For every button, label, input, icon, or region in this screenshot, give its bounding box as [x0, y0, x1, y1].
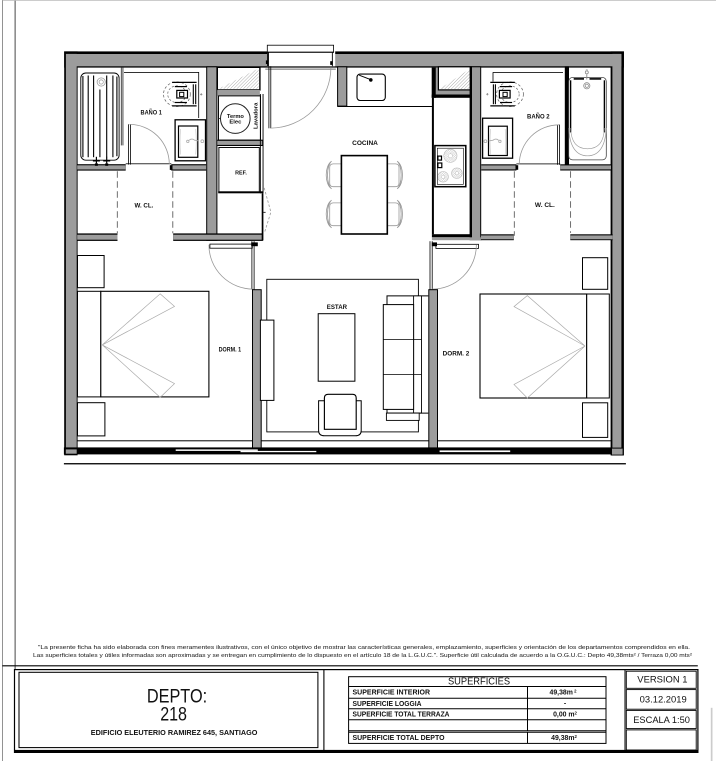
- svg-text:49,38m2: 49,38m2: [551, 734, 577, 742]
- svg-text:Elec: Elec: [229, 119, 241, 125]
- svg-text:DORM. 1: DORM. 1: [219, 347, 242, 354]
- svg-text:SUPERFICIE LOGGIA: SUPERFICIE LOGGIA: [353, 701, 422, 708]
- svg-text:SUPERFICIE INTERIOR: SUPERFICIE INTERIOR: [353, 690, 431, 697]
- svg-text:VERSION 1: VERSION 1: [637, 675, 687, 685]
- svg-text:0,00 m2: 0,00 m2: [553, 710, 577, 718]
- svg-text:ESTAR: ESTAR: [327, 304, 348, 311]
- svg-text:REF.: REF.: [235, 170, 247, 176]
- svg-text:BAÑO 2: BAÑO 2: [527, 113, 550, 120]
- svg-text:Lavadora: Lavadora: [254, 102, 260, 129]
- svg-text:COCINA: COCINA: [352, 140, 378, 147]
- svg-text:Las superficies totales y útil: Las superficies totales y útiles informa…: [33, 653, 692, 659]
- svg-text:SUPERFICIES: SUPERFICIES: [448, 676, 511, 687]
- svg-text:ESCALA 1:50: ESCALA 1:50: [633, 715, 690, 725]
- svg-text:"La presente ficha ha sido ela: "La presente ficha ha sido elaborada con…: [38, 645, 690, 651]
- svg-text:03.12.2019: 03.12.2019: [640, 695, 687, 705]
- svg-text:BAÑO 1: BAÑO 1: [141, 109, 163, 116]
- svg-text:W. CL.: W. CL.: [135, 203, 154, 210]
- svg-text:218: 218: [160, 705, 187, 726]
- svg-text:EDIFICIO ELEUTERIO RAMIREZ 645: EDIFICIO ELEUTERIO RAMIREZ 645, SANTIAGO: [91, 728, 258, 737]
- svg-text:SUPERFICIE TOTAL DEPTO: SUPERFICIE TOTAL DEPTO: [353, 735, 446, 742]
- svg-text:SUPERFICIE TOTAL TERRAZA: SUPERFICIE TOTAL TERRAZA: [353, 712, 450, 719]
- svg-text:DORM. 2: DORM. 2: [443, 350, 470, 357]
- svg-text:W. CL.: W. CL.: [535, 202, 555, 209]
